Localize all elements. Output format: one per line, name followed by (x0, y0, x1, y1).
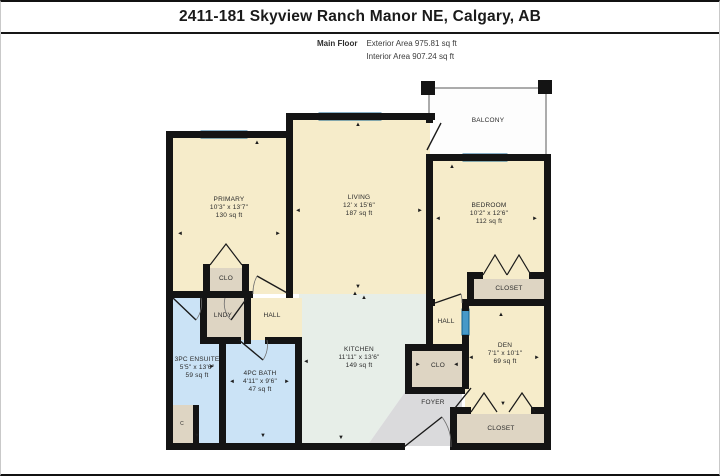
room-label-bedroom: BEDROOM 10'2" x 12'6" 112 sq ft (470, 202, 508, 226)
primary-closet-label: CLO (219, 275, 233, 283)
arrow-up-icon: ▲ (355, 122, 361, 128)
small-closet-label: C (180, 420, 184, 428)
balcony-label: BALCONY (472, 117, 504, 125)
arrow-down-icon: ▼ (260, 433, 266, 439)
hall-left-label: HALL (263, 312, 280, 320)
arrow-right-icon: ► (417, 208, 423, 214)
floorplan-page: 2411-181 Skyview Ranch Manor NE, Calgary… (0, 0, 720, 476)
room-label-bath: 4PC BATH 4'11" x 9'6" 47 sq ft (243, 370, 277, 394)
arrow-left-icon: ◄ (177, 231, 183, 237)
arrow-right-icon: ► (534, 355, 540, 361)
room-label-living: LIVING 12' x 15'6" 187 sq ft (343, 194, 375, 218)
arrow-up-icon: ▲ (498, 312, 504, 318)
arrow-right-icon: ► (275, 231, 281, 237)
room-label-den: DEN 7'1" x 10'1" 69 sq ft (488, 342, 522, 366)
arrow-left-icon: ◄ (435, 216, 441, 222)
bedroom-closet-label: CLOSET (495, 285, 522, 293)
room-label-primary: PRIMARY 10'3" x 13'7" 130 sq ft (210, 196, 248, 220)
foyer-label: FOYER (421, 399, 444, 407)
arrow-right-icon: ► (532, 216, 538, 222)
arrow-right-icon: ► (284, 379, 290, 385)
room-label-kitchen: KITCHEN 11'11" x 13'6" 149 sq ft (338, 346, 379, 370)
arrow-left-icon: ◄ (303, 359, 309, 365)
arrow-down-icon: ▼ (500, 401, 506, 407)
arrow-down-icon: ▼ (338, 435, 344, 441)
arrow-up-icon: ▲ (254, 140, 260, 146)
foyer-closet-label: CLO (431, 362, 445, 370)
arrow-up-icon: ▲ (449, 164, 455, 170)
arrow-up-icon: ▲ (352, 291, 358, 297)
arrow-left-icon: ◄ (295, 208, 301, 214)
den-closet-label: CLOSET (487, 425, 514, 433)
laundry-label: LNDY (214, 312, 232, 320)
arrow-right-icon: ► (415, 362, 421, 368)
arrow-down-icon: ▼ (194, 433, 200, 439)
arrow-right-icon: ► (209, 364, 215, 370)
arrow-down-icon: ▼ (355, 284, 361, 290)
arrow-up-icon: ▲ (361, 295, 367, 301)
floor-plan-drawing (1, 2, 720, 476)
arrow-left-icon: ◄ (229, 379, 235, 385)
arrow-left-icon: ◄ (468, 355, 474, 361)
hall-right-label: HALL (437, 318, 454, 326)
arrow-left-icon: ◄ (453, 362, 459, 368)
